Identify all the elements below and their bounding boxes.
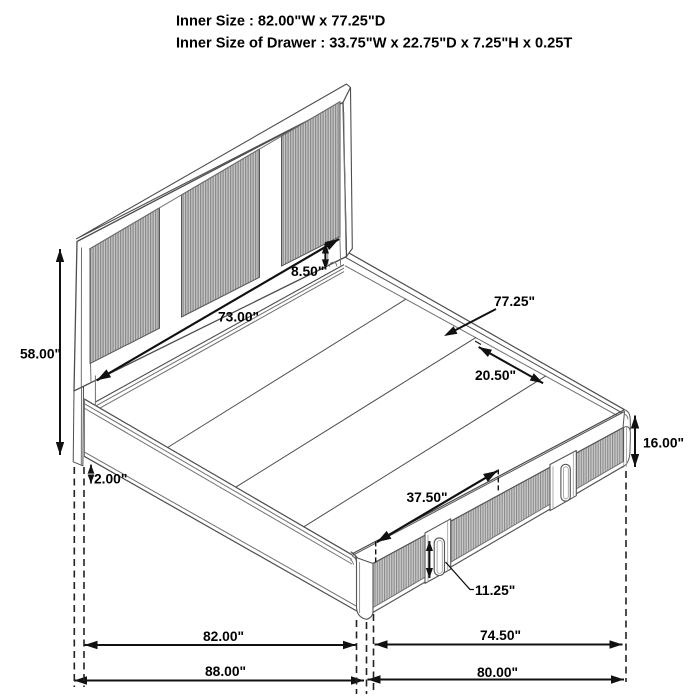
svg-text:Inner Size of Drawer : 33.75"W: Inner Size of Drawer : 33.75"W x 22.75"D… [176, 36, 572, 52]
svg-text:74.50": 74.50" [480, 628, 521, 643]
svg-text:8.50": 8.50" [291, 264, 324, 279]
svg-text:80.00": 80.00" [477, 665, 518, 680]
svg-text:73.00": 73.00" [218, 310, 259, 325]
svg-text:82.00": 82.00" [203, 629, 244, 644]
svg-text:16.00": 16.00" [643, 436, 684, 451]
svg-text:88.00": 88.00" [205, 664, 246, 679]
svg-text:Inner Size : 82.00"W x 77.25"D: Inner Size : 82.00"W x 77.25"D [176, 14, 385, 30]
svg-text:2.00": 2.00" [94, 472, 127, 487]
svg-text:58.00": 58.00" [20, 347, 61, 362]
svg-text:11.25": 11.25" [475, 583, 515, 598]
svg-text:20.50": 20.50" [475, 368, 516, 383]
svg-text:37.50": 37.50" [407, 490, 448, 505]
svg-text:77.25": 77.25" [494, 294, 535, 309]
